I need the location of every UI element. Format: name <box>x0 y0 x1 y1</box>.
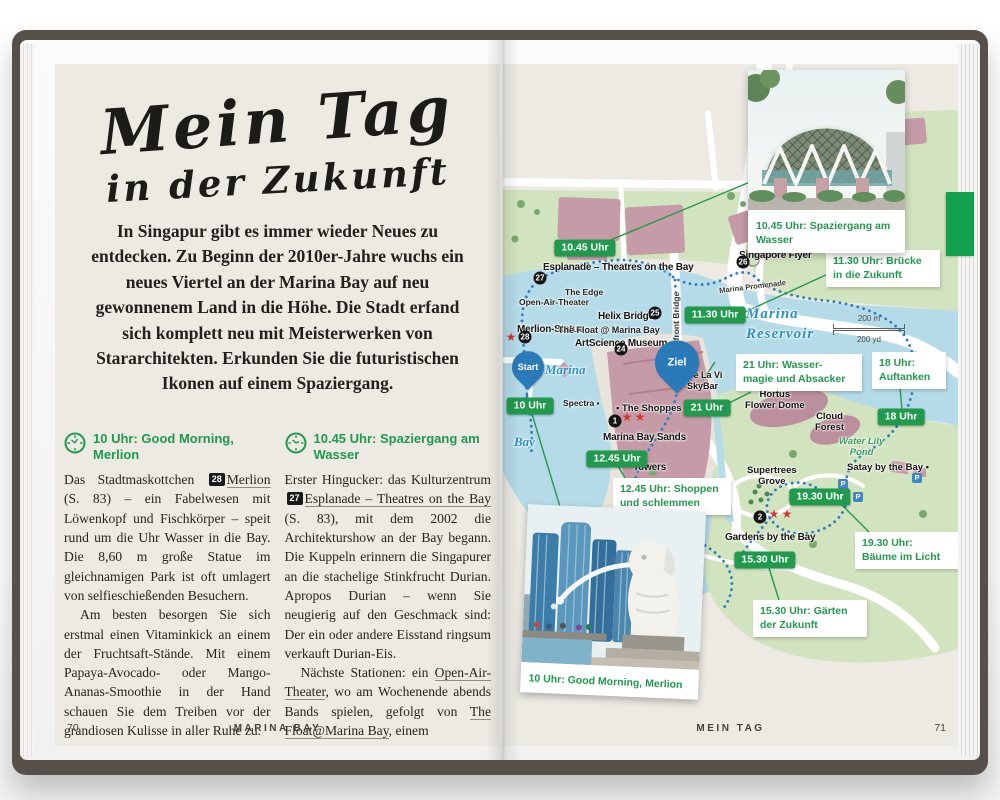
map-scale-bar: 200 m200 yd <box>833 314 905 344</box>
chapter-name: MEIN TAG <box>545 723 916 734</box>
map-callout: 21 Uhr: Wasser- magie und Absacker <box>736 354 862 391</box>
right-page: 10.45 Uhr11.30 Uhr10 Uhr21 Uhr12.45 Uhr1… <box>503 64 958 746</box>
map-place-label: Bay <box>514 434 535 450</box>
intro-paragraph: In Singapur gibt es immer wieder Neues z… <box>82 219 474 397</box>
map-callout: 15.30 Uhr: Gärten der Zukunft <box>753 600 867 637</box>
rating-star-icon: ★ <box>769 508 780 520</box>
photo-caption: 10.45 Uhr: Spaziergang am Wasser <box>748 215 905 253</box>
cross-reference-link[interactable]: Esplanade – Theatres on the Bay <box>305 491 491 507</box>
map-number-badge: 28 <box>519 331 532 344</box>
cross-reference-link[interactable]: Merlion <box>227 472 271 488</box>
ziel-marker-label: Ziel <box>655 340 699 384</box>
page-stack: Mein Tag in der Zukunft In Singapur gibt… <box>20 40 980 760</box>
chapter-title: Mein Tag in der Zukunft <box>55 90 500 199</box>
section-heading-text: 10 Uhr: Good Morning, Merlion <box>93 431 271 464</box>
map-time-pill: 15.30 Uhr <box>734 552 795 569</box>
map-ref-badge: 28 <box>209 473 225 486</box>
map-time-pill: 11.30 Uhr <box>685 307 746 324</box>
left-page: Mein Tag in der Zukunft In Singapur gibt… <box>55 64 500 746</box>
map-place-label: Hortus Flower Dome <box>745 390 805 412</box>
map-callout: 19.30 Uhr: Bäume im Licht <box>855 532 958 569</box>
book-cover: Mein Tag in der Zukunft In Singapur gibt… <box>12 30 988 775</box>
photo-esplanade: 10.45 Uhr: Spaziergang am Wasser <box>748 70 905 253</box>
left-page-footer: 70 MARINA BAY <box>55 722 500 734</box>
rating-star-icon: ★ <box>506 331 517 343</box>
ziel-marker-pin: Ziel <box>646 331 708 393</box>
chapter-name: MARINA BAY <box>97 723 458 734</box>
marina-bay-map: 10.45 Uhr11.30 Uhr10 Uhr21 Uhr12.45 Uhr1… <box>503 64 958 746</box>
map-place-label: Open-Air-Theater <box>519 297 589 307</box>
start-marker-label: Start <box>512 351 544 383</box>
map-time-pill: 10.45 Uhr <box>554 240 615 257</box>
column-spaziergang: 10.45 Uhr: Spaziergang am Wasser Erster … <box>285 431 492 741</box>
map-place-label: Marina <box>545 362 585 378</box>
photographed-book-spread: Mein Tag in der Zukunft In Singapur gibt… <box>0 0 1000 800</box>
map-place-label: Marina Promenade <box>719 278 787 295</box>
section-heading: 10 Uhr: Good Morning, Merlion <box>64 431 271 464</box>
parking-icon: P <box>853 492 863 502</box>
map-number-badge: 2 <box>754 511 767 524</box>
photo-merlion: 10 Uhr: Good Morning, Merlion <box>520 504 706 699</box>
scale-m-label: 200 m <box>833 314 905 324</box>
merlion-photo-image <box>521 504 706 670</box>
map-place-label: Marina Reservoir <box>746 304 814 345</box>
section-heading-text: 10.45 Uhr: Spaziergang am Wasser <box>314 431 492 464</box>
map-number-badge: 27 <box>534 272 547 285</box>
chapter-edge-tab <box>946 192 974 256</box>
page-edges-left <box>20 44 34 756</box>
map-number-badge: 25 <box>649 307 662 320</box>
map-place-label: Helix Bridge <box>598 311 654 322</box>
map-time-pill: 21 Uhr <box>684 400 731 417</box>
map-place-label: Water Lily Pond <box>839 436 884 459</box>
start-marker-pin: Start <box>505 345 550 390</box>
section-heading: 10.45 Uhr: Spaziergang am Wasser <box>285 431 492 464</box>
map-callout: 11.30 Uhr: Brücke in die Zukunft <box>826 250 940 287</box>
column-merlion: 10 Uhr: Good Morning, Merlion Das Stadtm… <box>64 431 271 741</box>
map-callout: 18 Uhr: Auftanken <box>872 352 946 389</box>
map-place-label: Supertrees Grove <box>747 466 797 488</box>
rating-star-icon: ★ <box>622 411 633 423</box>
page-number: 71 <box>916 722 946 734</box>
map-time-pill: 18 Uhr <box>878 409 925 426</box>
map-place-label: The Edge <box>565 287 603 297</box>
esplanade-photo-image <box>748 70 905 210</box>
map-place-label: Marina Bay Sands <box>603 432 686 443</box>
map-time-pill: 12.45 Uhr <box>586 451 647 468</box>
map-place-label: Satay by the Bay ▪ <box>847 462 929 473</box>
rating-star-icon: ★ <box>782 508 793 520</box>
map-number-badge: 24 <box>615 343 628 356</box>
cross-reference-link[interactable]: Open-Air-Theater <box>285 665 492 700</box>
section-body: Erster Hingucker: das Kulturzentrum 27Es… <box>285 470 492 740</box>
parking-icon: P <box>912 473 922 483</box>
map-place-label: Esplanade – Theatres on the Bay <box>543 262 694 273</box>
section-body: Das Stadtmaskottchen 28Merlion (S. 83) –… <box>64 470 271 740</box>
map-place-label: The Float @ Marina Bay <box>558 325 660 335</box>
itinerary-columns: 10 Uhr: Good Morning, Merlion Das Stadtm… <box>55 431 500 741</box>
map-time-pill: 19.30 Uhr <box>789 489 850 506</box>
map-number-badge: 26 <box>737 256 750 269</box>
map-number-badge: 1 <box>609 415 622 428</box>
page-edges-right <box>958 44 980 756</box>
clock-icon <box>64 432 86 454</box>
map-place-label: Cloud Forest <box>815 412 844 434</box>
map-place-label: Gardens by the Bay <box>725 532 815 543</box>
parking-icon: P <box>838 479 848 489</box>
map-time-pill: 10 Uhr <box>507 398 554 415</box>
right-page-footer: MEIN TAG 71 <box>503 722 958 734</box>
scale-yd-label: 200 yd <box>833 335 905 345</box>
map-ref-badge: 27 <box>287 492 303 505</box>
map-place-label: Spectra ▪ <box>563 398 600 408</box>
page-number: 70 <box>67 722 97 734</box>
clock-icon <box>285 432 307 454</box>
rating-star-icon: ★ <box>635 411 646 423</box>
